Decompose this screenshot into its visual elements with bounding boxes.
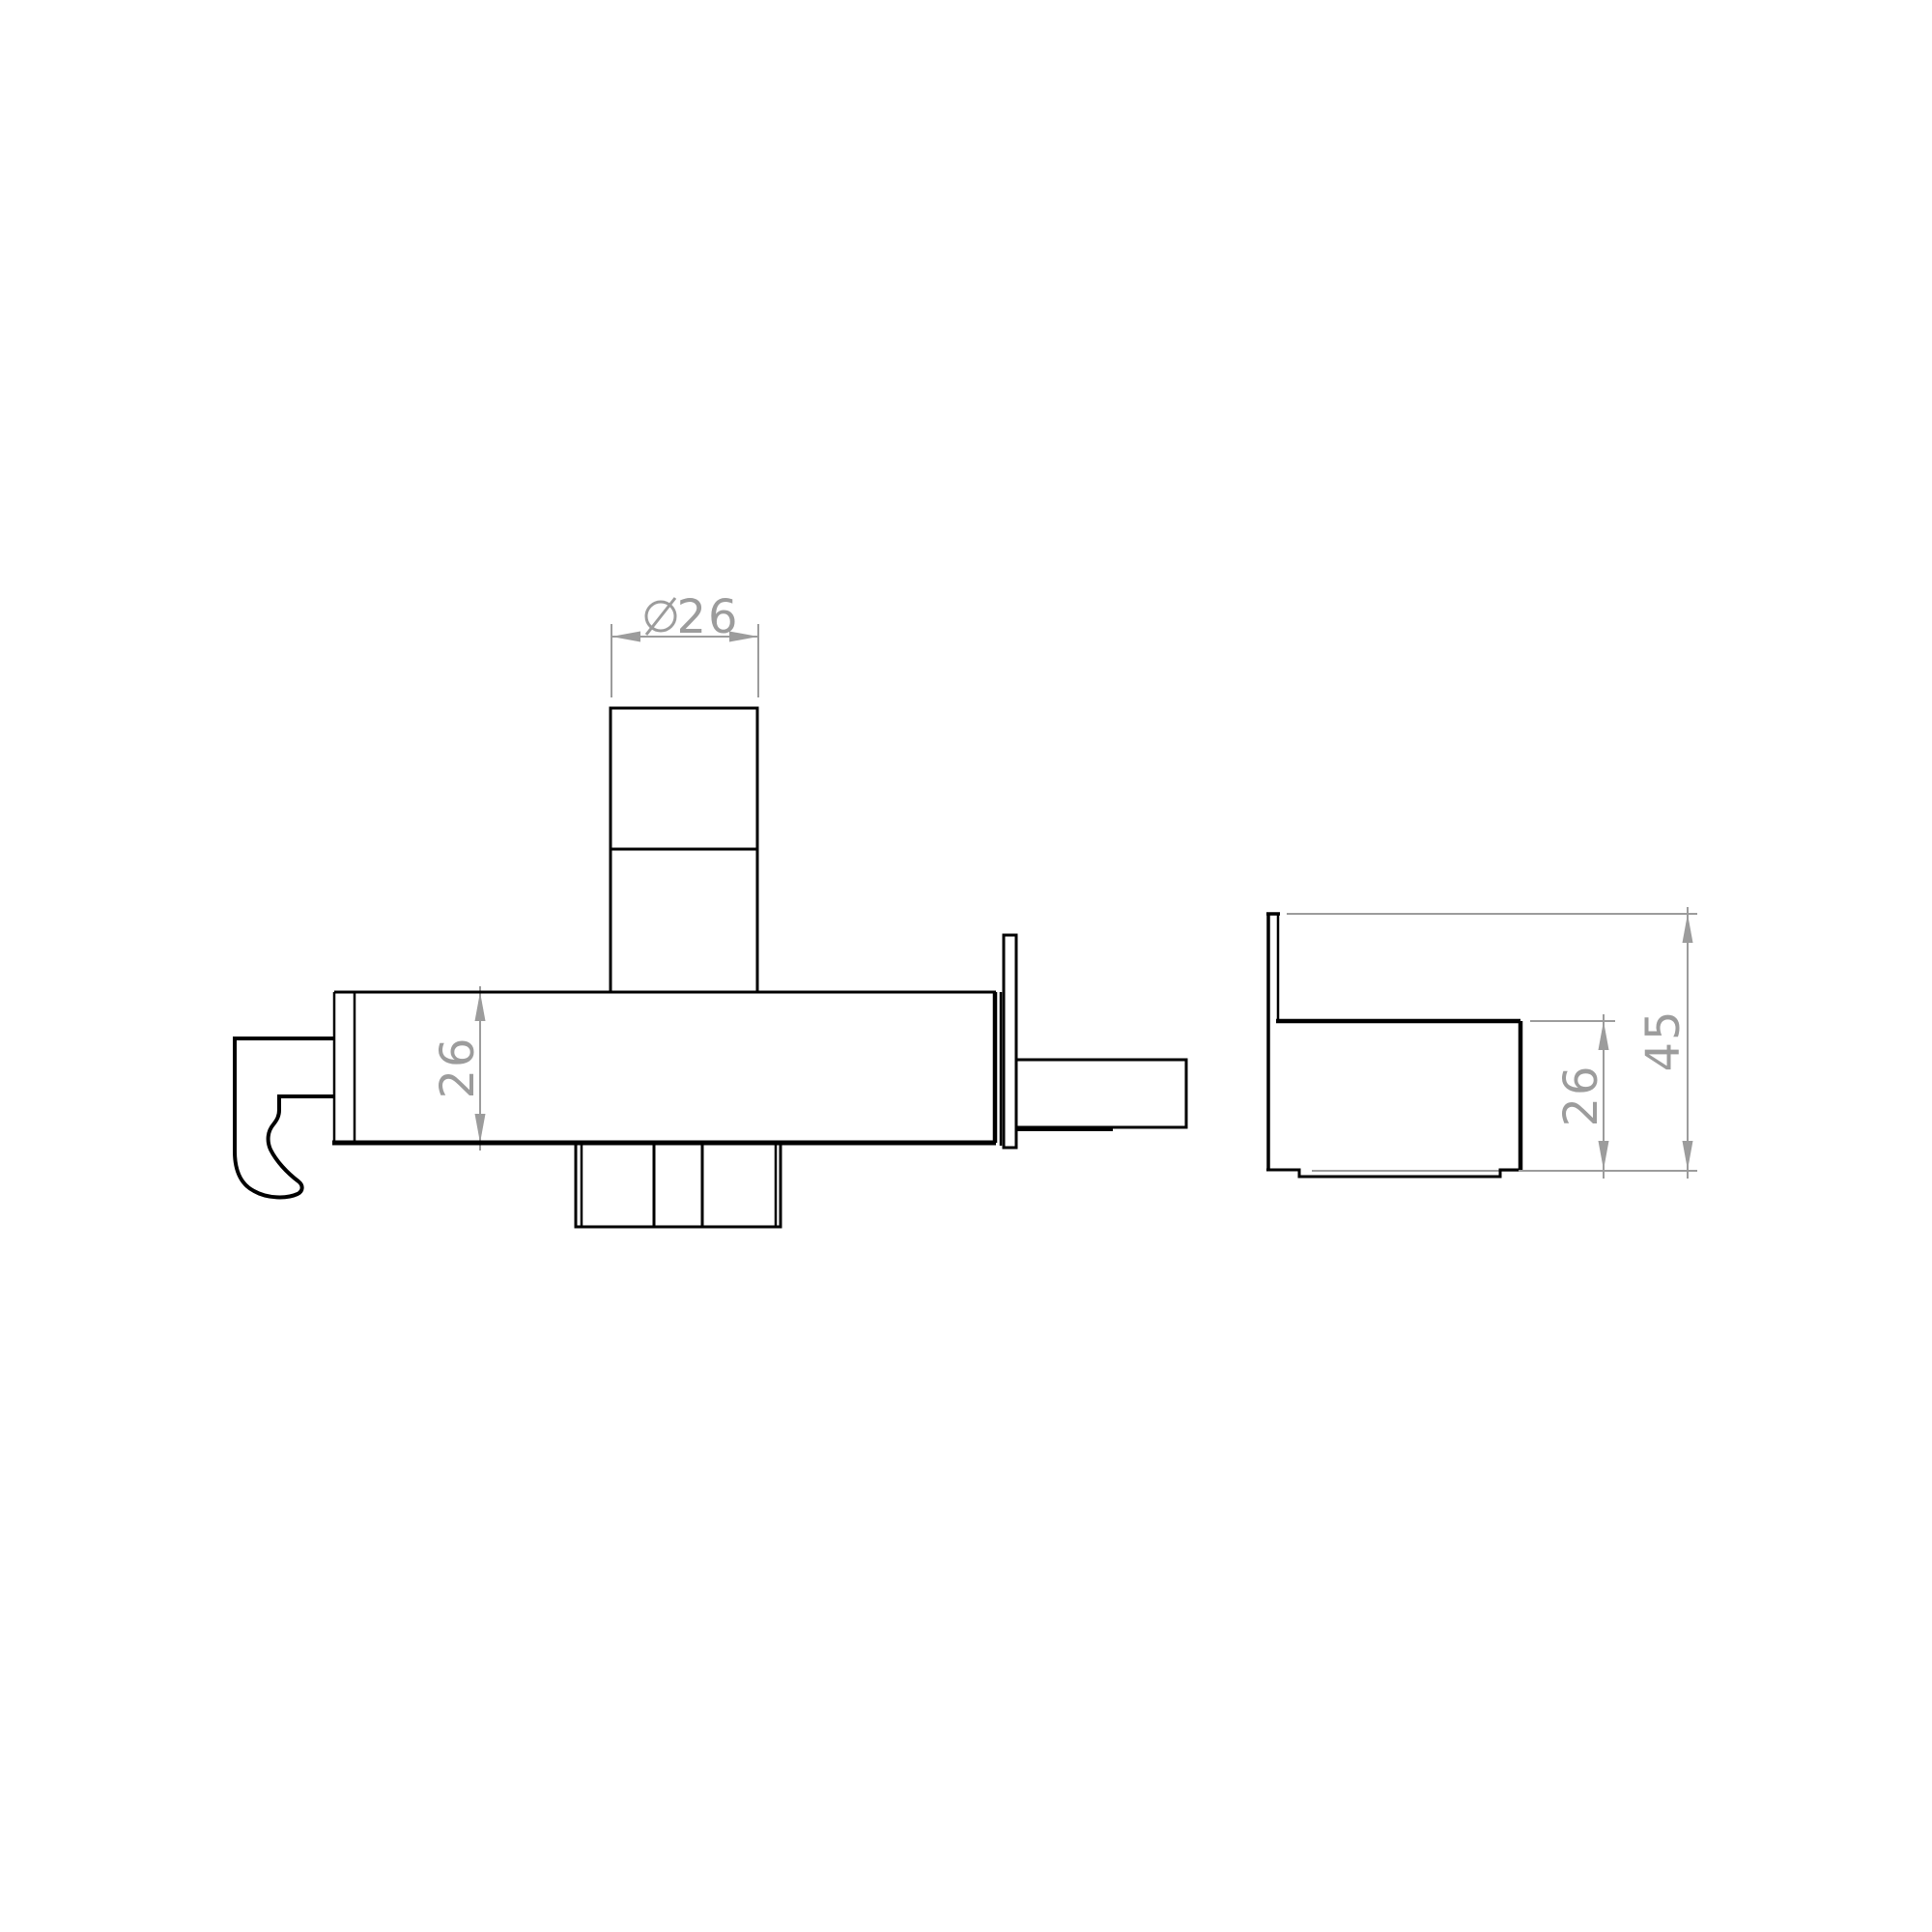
- arrow-up-icon: [475, 992, 486, 1021]
- hook: [235, 1038, 334, 1197]
- end-plate: [1004, 935, 1016, 1148]
- arrow-down-icon: [475, 1114, 486, 1143]
- bottom-block: [576, 1143, 781, 1227]
- side-depth-value: 26: [1554, 1064, 1608, 1126]
- rod: [1016, 1060, 1186, 1130]
- diameter-symbol: [646, 598, 675, 635]
- front-body-height-value: 26: [431, 1036, 485, 1098]
- geometry-layer: [235, 708, 1520, 1227]
- side-view: [1266, 914, 1520, 1177]
- side-height-value: 45: [1636, 1009, 1690, 1071]
- arrow-up-icon: [1599, 1021, 1609, 1050]
- dimension-arrowheads: [475, 632, 1693, 1171]
- front-view: [235, 708, 1186, 1227]
- side-block: [1266, 1021, 1520, 1177]
- dimension-text-layer: 26 26 26 45: [431, 590, 1690, 1127]
- front-diameter-value: 26: [676, 590, 739, 644]
- side-wall: [1266, 914, 1280, 1170]
- arrow-left-icon: [611, 632, 640, 642]
- arrow-down-icon: [1599, 1141, 1609, 1170]
- spindle-column: [611, 708, 757, 992]
- arrow-down-icon: [1683, 1141, 1693, 1170]
- arrow-up-icon: [1683, 914, 1693, 943]
- technical-drawing: 26 26 26 45: [0, 0, 1932, 1932]
